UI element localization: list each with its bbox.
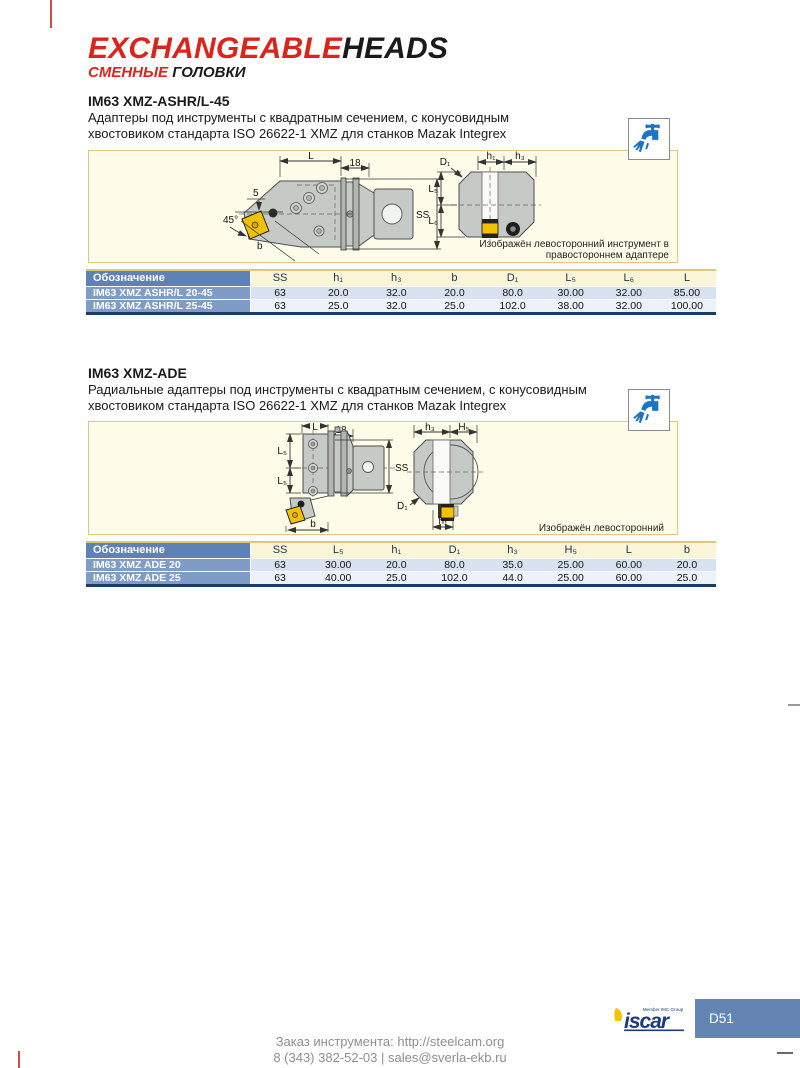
cell: 25.0 (309, 300, 367, 312)
row-designation: IM63 XMZ ASHR/L 25-45 (86, 300, 251, 312)
dim-label-D1: D₁ (397, 501, 408, 512)
cell: 63 (251, 559, 309, 571)
logo-wordmark: iscar (624, 1010, 671, 1032)
dim-label-L5: L₅ (428, 184, 438, 195)
crop-mark-bottom-right (777, 1052, 793, 1054)
shank (328, 427, 384, 496)
cell: 63 (251, 287, 309, 299)
cell: 60.00 (600, 572, 658, 584)
cell: 44.0 (484, 572, 542, 584)
dim-label-h1: h₁ (439, 516, 449, 527)
cell: 102.0 (425, 572, 483, 584)
shank-hole (382, 204, 402, 224)
col-header: SS (251, 271, 309, 286)
col-header: L₆ (600, 271, 658, 286)
crop-mark-right (788, 704, 800, 706)
page-subtitle-black: ГОЛОВКИ (172, 64, 245, 81)
cell: 20.0 (309, 287, 367, 299)
insert-assembly (286, 496, 328, 524)
dim-label-H5: H₅ (458, 422, 469, 433)
cell: 38.00 (542, 300, 600, 312)
section2-title: IM63 XMZ-ADE (88, 365, 187, 381)
col-header: L (658, 271, 716, 286)
col-header: b (658, 543, 716, 558)
col-header-designation: Обозначение (86, 271, 251, 286)
front-insert (482, 223, 498, 234)
coolant-faucet-icon (633, 123, 665, 155)
coolant-icon-box-1 (628, 118, 670, 160)
col-header: b (425, 271, 483, 286)
col-header: h₃ (367, 271, 425, 286)
spec-table-ade: Обозначение SS L₅ h₁ D₁ h₃ H₅ L b IM63 X… (86, 541, 716, 587)
cell: 32.00 (600, 300, 658, 312)
page-number-tab: D51 (695, 999, 800, 1038)
crop-mark-bottom-left (18, 1051, 20, 1068)
cell: 20.0 (658, 559, 716, 571)
page-subtitle: СМЕННЫЕ ГОЛОВКИ (88, 64, 245, 81)
cell: 40.00 (309, 572, 367, 584)
dim-label-b: b (310, 519, 316, 530)
page-title-red: EXCHANGEABLE (88, 32, 342, 65)
dim-label-L6: L₆ (428, 216, 438, 227)
col-header: D₁ (425, 543, 483, 558)
section2-description: Радиальные адаптеры под инструменты с кв… (88, 382, 587, 413)
dim-label-b: b (257, 241, 263, 252)
col-header: L₅ (542, 271, 600, 286)
cell: 20.0 (425, 287, 483, 299)
cell: 100.00 (658, 300, 716, 312)
section1-description: Адаптеры под инструменты с квадратным се… (88, 110, 509, 141)
dim-label-45deg: 45° (223, 215, 238, 226)
diagram-panel-1: L 18 (88, 150, 678, 263)
cell: 30.00 (309, 559, 367, 571)
col-header: h₃ (484, 543, 542, 558)
iscar-logo: Member IMC Group iscar (613, 1004, 695, 1032)
cell: 25.0 (367, 572, 425, 584)
table-row: IM63 XMZ ASHR/L 25-45 63 25.0 32.0 25.0 … (86, 299, 716, 312)
footer-order-url: Заказ инструмента: http://steelcam.org (90, 1034, 690, 1050)
cell: 25.00 (542, 572, 600, 584)
footer-order-contacts: 8 (343) 382-52-03 | sales@sverla-ekb.ru (90, 1050, 690, 1066)
cell: 80.0 (484, 287, 542, 299)
footer-order-info: Заказ инструмента: http://steelcam.org 8… (90, 1034, 690, 1066)
cell: 30.00 (542, 287, 600, 299)
cell: 63 (251, 572, 309, 584)
dim-label-L5-upper: L₅ (277, 446, 287, 457)
cell: 32.0 (367, 300, 425, 312)
cell: 25.0 (425, 300, 483, 312)
dim-label-L5-lower: L₅ (277, 476, 287, 487)
cell: 35.0 (484, 559, 542, 571)
page-subtitle-red: СМЕННЫЕ (88, 64, 168, 81)
dim-label-5: 5 (253, 188, 259, 199)
page-title: EXCHANGEABLEHEADS (88, 33, 448, 64)
cell: 32.00 (600, 287, 658, 299)
front-view-drawing: h₃ H₅ D₁ h₁ (397, 422, 483, 530)
dim-label-18: 18 (349, 158, 361, 169)
dim-label-D1: D₁ (440, 157, 451, 168)
table-header-row: Обозначение SS h₁ h₃ b D₁ L₅ L₆ L (86, 271, 716, 286)
cell: 85.00 (658, 287, 716, 299)
cell: 20.0 (367, 559, 425, 571)
technical-drawing-ashr: L 18 (89, 151, 677, 262)
diagram1-caption-line2: правостороннем адаптере (546, 250, 670, 261)
col-header: h₁ (309, 271, 367, 286)
col-header: L₅ (309, 543, 367, 558)
spec-table-ashr: Обозначение SS h₁ h₃ b D₁ L₅ L₆ L IM63 X… (86, 269, 716, 315)
side-view-drawing: L 18 (277, 422, 408, 532)
cell: 32.0 (367, 287, 425, 299)
row-designation: IM63 XMZ ADE 25 (86, 572, 251, 584)
section2-desc-line1: Радиальные адаптеры под инструменты с кв… (88, 382, 587, 398)
front-view-drawing: h₁ h₃ D₁ L₅ L₆ (428, 151, 541, 243)
section1-title: IM63 XMZ-ASHR/L-45 (88, 93, 230, 109)
diagram-panel-2: L 18 (88, 421, 678, 535)
coolant-icon-box-2 (628, 389, 670, 431)
dim-label-h3: h₃ (425, 422, 435, 433)
col-header-designation: Обозначение (86, 543, 251, 558)
row-designation: IM63 XMZ ASHR/L 20-45 (86, 287, 251, 299)
clamp-screw (269, 209, 278, 218)
row-designation: IM63 XMZ ADE 20 (86, 559, 251, 571)
section1-desc-line1: Адаптеры под инструменты с квадратным се… (88, 110, 509, 126)
col-header: H₅ (542, 543, 600, 558)
section1-desc-line2: хвостовиком стандарта ISO 26622-1 XMZ дл… (88, 126, 509, 142)
catalog-page: EXCHANGEABLEHEADS СМЕННЫЕ ГОЛОВКИ IM63 X… (0, 0, 800, 1068)
side-view-drawing: L 18 (223, 151, 441, 261)
section2-desc-line2: хвостовиком стандарта ISO 26622-1 XMZ дл… (88, 398, 587, 414)
technical-drawing-ade: L 18 (89, 422, 677, 534)
shank (341, 178, 413, 250)
logo-flame-icon (614, 1008, 622, 1021)
dim-label-h3: h₃ (515, 151, 525, 162)
table-row: IM63 XMZ ASHR/L 20-45 63 20.0 32.0 20.0 … (86, 286, 716, 299)
col-header: D₁ (484, 271, 542, 286)
crop-mark-top-left (50, 0, 52, 28)
cell: 60.00 (600, 559, 658, 571)
dim-label-L: L (308, 151, 314, 162)
shank-hole (363, 462, 374, 473)
cell: 25.0 (658, 572, 716, 584)
page-title-black: HEADS (342, 32, 448, 65)
coolant-faucet-icon (633, 394, 665, 426)
col-header: SS (251, 543, 309, 558)
cell: 25.00 (542, 559, 600, 571)
diagram1-caption-line1: Изображён левосторонний инструмент в (479, 238, 669, 250)
cell: 80.0 (425, 559, 483, 571)
table-header-row: Обозначение SS L₅ h₁ D₁ h₃ H₅ L b (86, 543, 716, 558)
cell: 102.0 (484, 300, 542, 312)
col-header: L (600, 543, 658, 558)
table-row: IM63 XMZ ADE 20 63 30.00 20.0 80.0 35.0 … (86, 558, 716, 571)
dim-label-h1: h₁ (487, 151, 497, 162)
cell: 63 (251, 300, 309, 312)
dim-label-SS: SS (395, 463, 409, 474)
table-row: IM63 XMZ ADE 25 63 40.00 25.0 102.0 44.0… (86, 571, 716, 584)
col-header: h₁ (367, 543, 425, 558)
diagram2-caption: Изображён левосторонний (539, 522, 664, 534)
